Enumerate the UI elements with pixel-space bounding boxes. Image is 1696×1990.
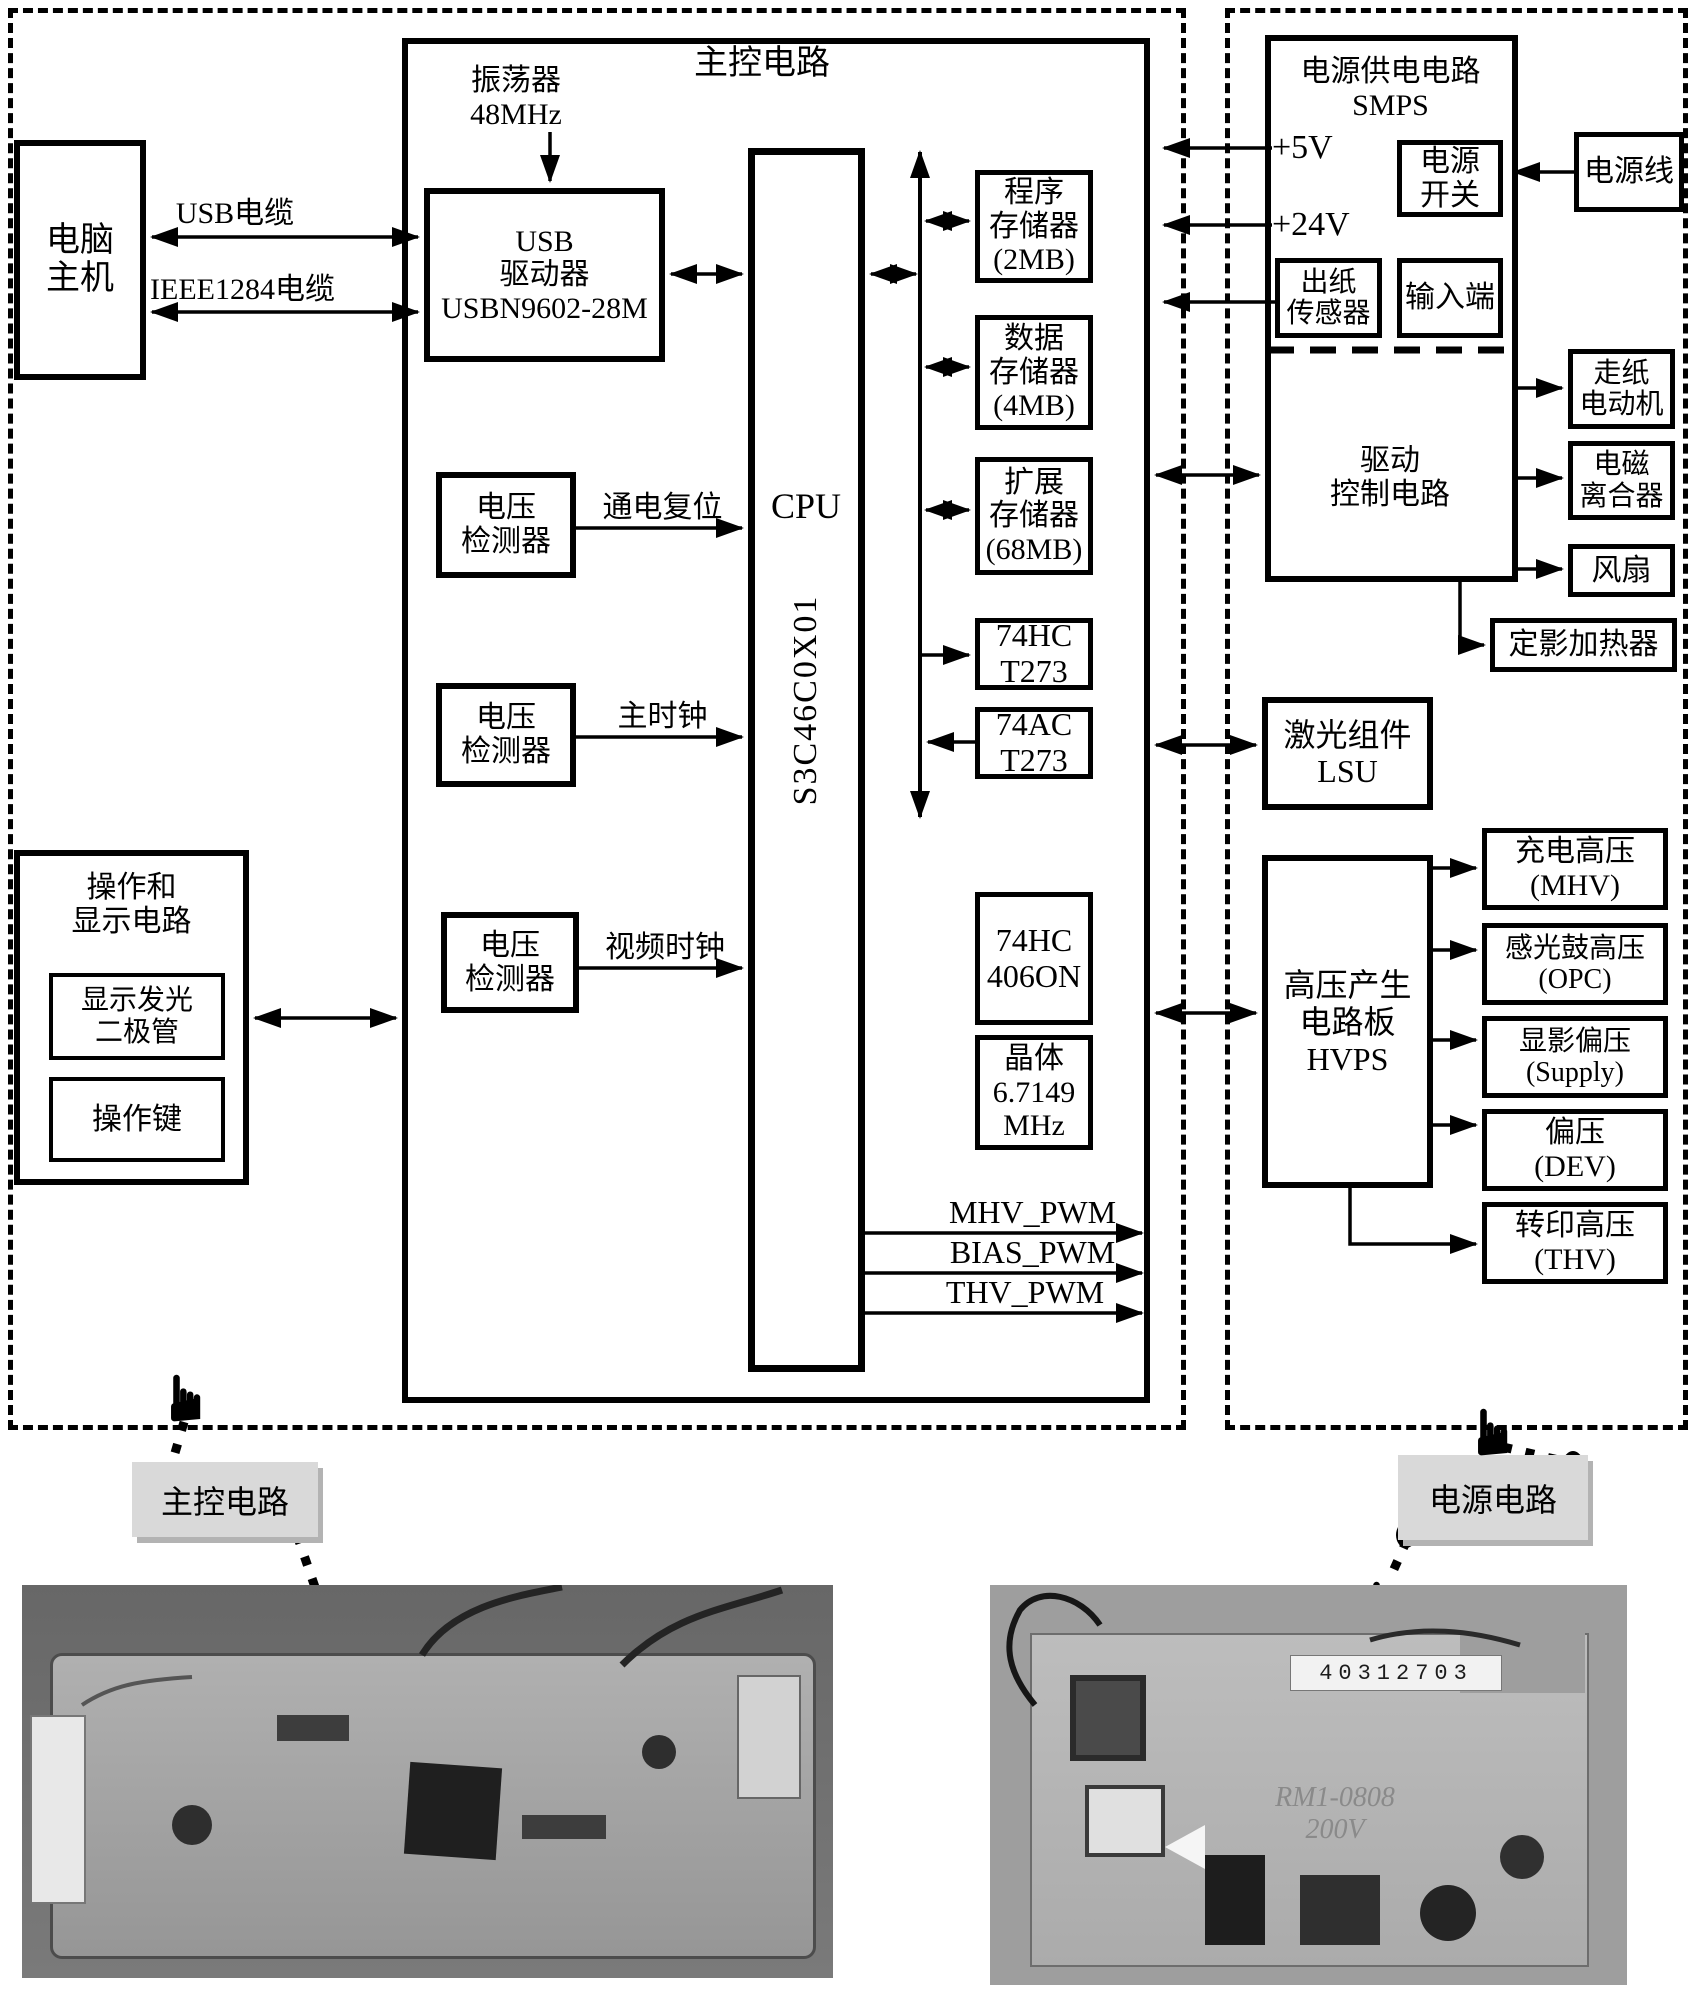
fuser-heater-label: 定影加热器 — [1509, 628, 1659, 662]
power-switch-box: 电源 开关 — [1397, 140, 1503, 217]
page: 电脑 主机 USB电缆 IEEE1284电缆 操作和 显示电路 显示发光 二极管… — [0, 0, 1696, 1990]
ic-74hct273-box: 74HC T273 — [975, 618, 1093, 690]
panel-title: 操作和 显示电路 — [30, 866, 233, 944]
data-memory-box: 数据 存储器 (4MB) — [975, 315, 1093, 430]
panel-led-label: 显示发光 二极管 — [81, 985, 193, 1048]
out-opc-box: 感光鼓高压 (OPC) — [1482, 923, 1668, 1005]
voltage-detector-2-label: 电压 检测器 — [461, 701, 551, 768]
clutch-label: 电磁 离合器 — [1579, 449, 1663, 512]
computer-host-box: 电脑 主机 — [14, 140, 146, 380]
out-thv-box: 转印高压 (THV) — [1482, 1202, 1668, 1284]
power-cord-box: 电源线 — [1574, 132, 1684, 212]
out-dev-label: 偏压 (DEV) — [1534, 1116, 1616, 1183]
crystal-box: 晶体 6.7149 MHz — [975, 1035, 1093, 1150]
hand-pointer-icon: ☛ — [1465, 1400, 1522, 1464]
lsu-label: 激光组件 LSU — [1283, 718, 1411, 790]
out-mhv-box: 充电高压 (MHV) — [1482, 828, 1668, 910]
paper-out-sensor-box: 出纸 传感器 — [1275, 258, 1382, 338]
out-thv-label: 转印高压 (THV) — [1515, 1209, 1635, 1276]
computer-host-label: 电脑 主机 — [46, 222, 114, 298]
pwm-thv-label: THV_PWM — [930, 1274, 1120, 1310]
panel-led-box: 显示发光 二极管 — [49, 973, 225, 1060]
pwm-bias-label: BIAS_PWM — [935, 1234, 1130, 1270]
main-clock-label: 主时钟 — [600, 699, 725, 735]
data-memory-label: 数据 存储器 (4MB) — [989, 322, 1079, 423]
usb-driver-label: USB 驱动器 USBN9602-28M — [441, 225, 648, 326]
hand-pointer-icon: ☛ — [158, 1366, 215, 1430]
pwm-mhv-label: MHV_PWM — [935, 1194, 1130, 1230]
video-clock-label: 视频时钟 — [585, 930, 745, 966]
clutch-box: 电磁 离合器 — [1568, 441, 1675, 520]
ic-74act273-box: 74AC T273 — [975, 707, 1093, 779]
main-title: 主控电路 — [642, 42, 882, 86]
usb-driver-box: USB 驱动器 USBN9602-28M — [424, 188, 665, 362]
paper-motor-box: 走纸 电动机 — [1568, 349, 1675, 429]
power-board-note: 电源电路 — [1398, 1455, 1588, 1540]
drive-control-label: 驱动 控制电路 — [1285, 438, 1495, 518]
expansion-memory-label: 扩展 存储器 (68MB) — [986, 466, 1083, 567]
ic-74act273-label: 74AC T273 — [996, 707, 1072, 779]
crystal-label: 晶体 6.7149 MHz — [993, 1042, 1076, 1143]
smps-title: 电源供电电路 SMPS — [1283, 50, 1498, 128]
power-on-reset-label: 通电复位 — [585, 490, 740, 526]
main-board-note: 主控电路 — [132, 1462, 318, 1537]
fuser-heater-box: 定影加热器 — [1490, 618, 1677, 672]
ic-74hc406on-label: 74HC 406ON — [987, 923, 1081, 995]
program-memory-box: 程序 存储器 (2MB) — [975, 170, 1093, 283]
out-dev-box: 偏压 (DEV) — [1482, 1109, 1668, 1191]
out-opc-label: 感光鼓高压 (OPC) — [1505, 933, 1645, 996]
paper-out-sensor-label: 出纸 传感器 — [1286, 267, 1370, 330]
fan-box: 风扇 — [1568, 544, 1675, 597]
out-mhv-label: 充电高压 (MHV) — [1515, 835, 1635, 902]
out-supply-box: 显影偏压 (Supply) — [1482, 1016, 1668, 1098]
plus5v-label: +5V — [1272, 130, 1372, 166]
voltage-detector-3-label: 电压 检测器 — [465, 929, 555, 996]
oscillator-label: 振荡器 48MHz — [426, 62, 606, 134]
voltage-detector-2-box: 电压 检测器 — [436, 683, 576, 787]
program-memory-label: 程序 存储器 (2MB) — [989, 176, 1079, 277]
main-board-note-label: 主控电路 — [161, 1477, 289, 1523]
main-board-photo — [22, 1585, 833, 1978]
plus24v-label: +24V — [1272, 207, 1392, 243]
ic-74hct273-label: 74HC T273 — [996, 618, 1072, 690]
input-terminal-box: 输入端 — [1397, 258, 1503, 338]
panel-keys-box: 操作键 — [49, 1077, 225, 1162]
input-terminal-label: 输入端 — [1405, 281, 1495, 315]
power-board-note-label: 电源电路 — [1429, 1475, 1557, 1521]
voltage-detector-1-box: 电压 检测器 — [436, 472, 576, 578]
fan-label: 风扇 — [1592, 554, 1652, 588]
voltage-detector-3-box: 电压 检测器 — [441, 912, 579, 1013]
lsu-box: 激光组件 LSU — [1262, 697, 1433, 810]
usb-cable-label: USB电缆 — [135, 196, 335, 232]
ic-74hc406on-box: 74HC 406ON — [975, 892, 1093, 1025]
paper-motor-label: 走纸 电动机 — [1579, 358, 1663, 421]
ieee1284-cable-label: IEEE1284电缆 — [130, 272, 355, 308]
expansion-memory-box: 扩展 存储器 (68MB) — [975, 457, 1093, 575]
cpu-part-label: S3C46C0X01 — [784, 500, 828, 900]
panel-keys-label: 操作键 — [92, 1103, 182, 1137]
hvps-label: 高压产生 电路板 HVPS — [1272, 960, 1423, 1085]
power-switch-label: 电源 开关 — [1420, 145, 1480, 212]
voltage-detector-1-label: 电压 检测器 — [461, 491, 551, 558]
out-supply-label: 显影偏压 (Supply) — [1519, 1026, 1631, 1089]
power-cord-label: 电源线 — [1584, 155, 1674, 189]
power-board-photo: 40312703 RM1-0808 200V — [990, 1585, 1627, 1985]
